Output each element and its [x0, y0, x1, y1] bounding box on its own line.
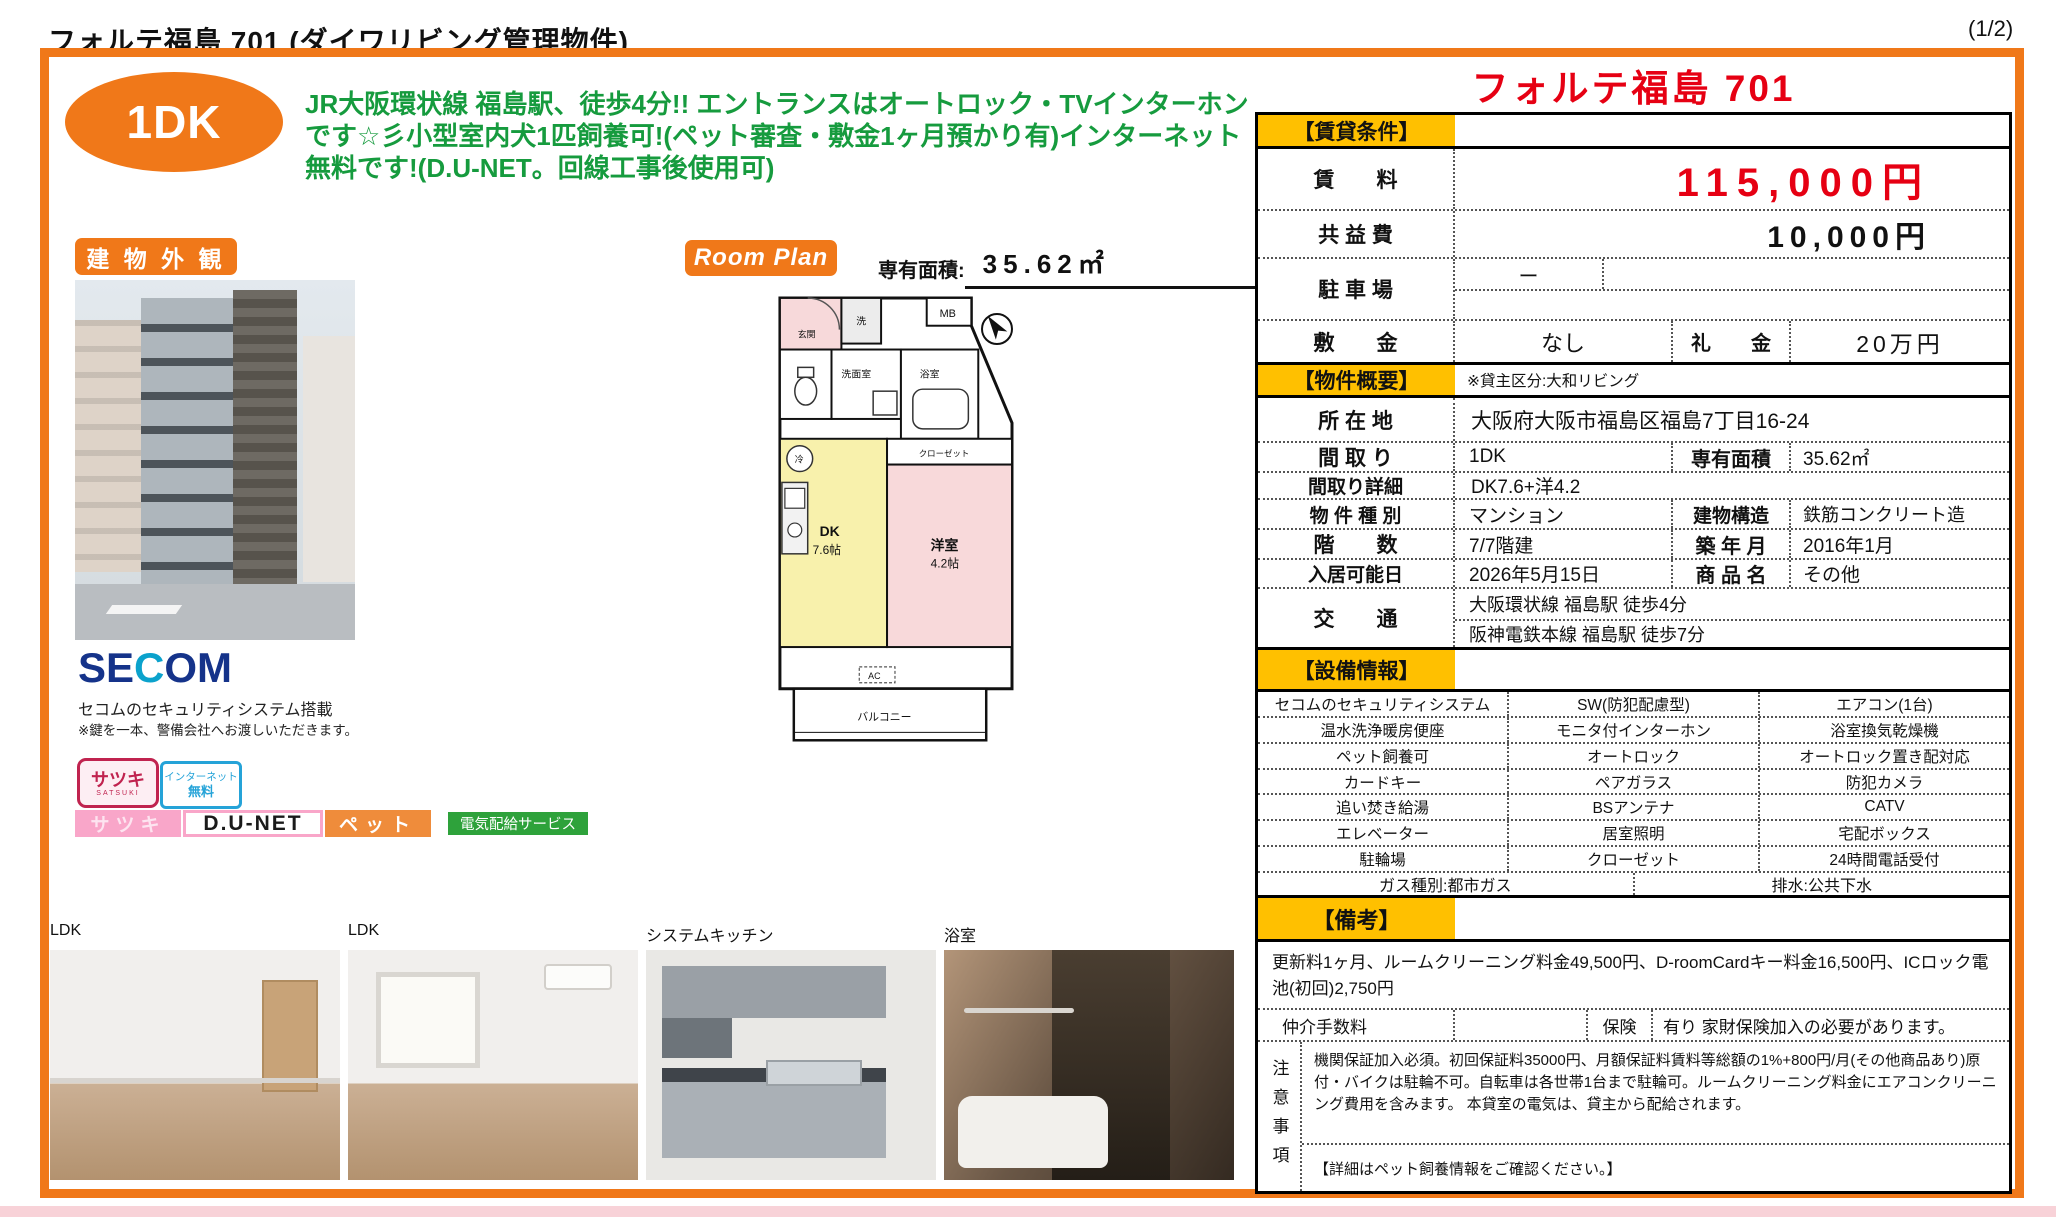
equipment-row: エレベーター 居室照明 宅配ボックス [1258, 821, 2009, 847]
ac-label: AC [868, 671, 881, 681]
photo-ldk-2-window [376, 972, 480, 1068]
equipment-item: BSアンテナ [1509, 795, 1760, 819]
area-value: 35.62㎡ [965, 244, 1283, 289]
equipment-row: 温水洗浄暖房便座 モニタ付インターホン 浴室換気乾燥機 [1258, 718, 2009, 744]
owner-note: ※貸主区分:大和リビング [1455, 365, 2009, 395]
parking-value: ー [1455, 259, 1602, 289]
dk-size-label: 7.6帖 [813, 543, 842, 557]
toilet-tank-icon [798, 367, 814, 377]
equipment-item: セコムのセキュリティシステム [1258, 692, 1509, 716]
section-property-overview: 【物件概要】 ※貸主区分:大和リビング [1258, 365, 2009, 398]
photo-brick-tower [233, 290, 297, 594]
equipment-row: カードキー ペアガラス 防犯カメラ [1258, 770, 2009, 796]
photo-right-building [303, 336, 355, 582]
caution-text-1: 機関保証加入必須。初回保証料35000円、月額保証料賃料等総額の1%+800円/… [1302, 1042, 2009, 1145]
rent-value: 115,000円 [1455, 149, 2009, 209]
equipment-item: 温水洗浄暖房便座 [1258, 718, 1509, 742]
key-money-value: 20万円 [1791, 321, 2009, 362]
photo-kitchen-lower-cabinet [662, 1082, 886, 1158]
property-type-value: マンション [1455, 500, 1671, 528]
washroom-label: 洗面室 [841, 367, 871, 380]
toilet-bowl-icon [795, 377, 817, 405]
equipment-item: 防犯カメラ [1760, 770, 2009, 794]
photo-kitchen-upper-cabinet [662, 966, 886, 1018]
common-fee-value: 10,000円 [1455, 211, 2009, 257]
movein-label: 入居可能日 [1258, 560, 1455, 587]
gas-type: ガス種別:都市ガス [1258, 873, 1635, 895]
caution-row: 注意事項 機関保証加入必須。初回保証料35000円、月額保証料賃料等総額の1%+… [1258, 1042, 2009, 1191]
access-line-1: 大阪環状線 福島駅 徒歩4分 [1455, 589, 2009, 621]
photo-label-2: LDK [348, 922, 379, 940]
equipment-item: 追い焚き給湯 [1258, 795, 1509, 819]
exclusive-area-value: 35.62㎡ [1791, 443, 2009, 471]
dunet-badge: D.U-NET [183, 810, 323, 837]
meter-box-label: MB [940, 308, 956, 320]
satsuki-stamp-sub: SATSUKI [96, 790, 139, 797]
equipment-item: 駐輪場 [1258, 847, 1509, 871]
internet-free-line1: インターネット [164, 771, 238, 784]
secom-note-2: ※鍵を一本、警備会社へお渡しいただきます。 [78, 719, 358, 739]
photo-kitchen-hood [662, 1018, 732, 1058]
entrance-label: 玄関 [798, 329, 816, 340]
remarks-header: 【備考】 [1258, 898, 1455, 939]
equipment-item: カードキー [1258, 770, 1509, 794]
deposit-row: 敷 金 なし 礼 金 20万円 [1258, 321, 2009, 365]
western-label: 洋室 [931, 537, 959, 553]
equipment-spacer [1455, 650, 2009, 689]
parking-divider-h [1455, 289, 2009, 291]
photo-ldk-2-aircon [544, 964, 612, 990]
parking-label: 駐 車 場 [1258, 259, 1455, 319]
satsuki-stamp-badge: サツキ SATSUKI [77, 758, 159, 808]
rent-row: 賃 料 115,000円 [1258, 149, 2009, 211]
photo-kitchen [646, 950, 936, 1180]
photo-bathroom-towel-bar [964, 1008, 1074, 1013]
common-fee-row: 共 益 費 10,000円 [1258, 211, 2009, 259]
structure-label: 建物構造 [1671, 500, 1791, 528]
drain-type: 排水:公共下水 [1635, 873, 2010, 895]
common-fee-label: 共 益 費 [1258, 211, 1455, 257]
entrance-area [780, 298, 841, 350]
closet-label: クローゼット [919, 449, 970, 459]
photo-ldk-1-baseboard [50, 1078, 340, 1083]
secom-logo-om: OM [164, 644, 232, 691]
section-equipment: 【設備情報】 [1258, 650, 2009, 692]
satsuki-bar-badge: サツキ [75, 810, 181, 837]
property-title: フォルテ福島 701 [1255, 58, 2012, 112]
photo-road-marking [106, 605, 182, 614]
secom-logo-se: SE [78, 644, 134, 691]
equipment-header: 【設備情報】 [1258, 650, 1455, 689]
photo-label-1: LDK [50, 922, 81, 940]
structure-value: 鉄筋コンクリート造 [1791, 500, 2009, 528]
balcony-label: バルコニー [857, 711, 911, 723]
bathtub-icon [913, 389, 969, 429]
parking-divider-v [1602, 259, 1604, 289]
floors-row: 階 数 7/7階建 築 年 月 2016年1月 [1258, 530, 2009, 560]
western-size-label: 4.2帖 [931, 557, 960, 571]
secom-logo: SECOM [78, 644, 232, 692]
equipment-item: 24時間電話受付 [1760, 847, 2009, 871]
photo-ldk-1 [50, 950, 340, 1180]
equipment-item: ペット飼養可 [1258, 744, 1509, 768]
secom-note-1: セコムのセキュリティシステム搭載 [78, 696, 333, 720]
area-label: 専有面積: [878, 254, 965, 289]
broker-insurance-row: 仲介手数料 保険 有り 家財保険加入の必要があります。 [1258, 1010, 2009, 1042]
internet-free-line2: 無料 [188, 784, 214, 799]
movein-row: 入居可能日 2026年5月15日 商 品 名 その他 [1258, 560, 2009, 589]
photo-label-3: システムキッチン [646, 922, 774, 946]
equipment-item: 宅配ボックス [1760, 821, 2009, 845]
address-row: 所 在 地 大阪府大阪市福島区福島7丁目16-24 [1258, 398, 2009, 443]
insurance-value: 有り 家財保険加入の必要があります。 [1653, 1010, 2009, 1040]
bathroom-label: 浴室 [920, 367, 940, 380]
photo-balcony-floors [141, 298, 233, 594]
floors-value: 7/7階建 [1455, 530, 1671, 558]
secom-logo-c: C [134, 644, 164, 691]
kitchen-sink-icon [785, 488, 805, 508]
equipment-item: モニタ付インターホン [1509, 718, 1760, 742]
exclusive-area-label: 専有面積 [1671, 443, 1791, 471]
insurance-label: 保険 [1588, 1010, 1653, 1040]
floors-label: 階 数 [1258, 530, 1455, 558]
caution-label: 注意事項 [1258, 1042, 1302, 1191]
access-label: 交 通 [1258, 589, 1455, 647]
layout-label: 間 取 り [1258, 443, 1455, 471]
stove-icon [788, 523, 802, 537]
internet-free-badge: インターネット 無料 [160, 761, 242, 809]
caution-text-2: 【詳細はペット飼養情報をご確認ください。】 [1302, 1145, 2009, 1191]
gas-drain-row: ガス種別:都市ガス 排水:公共下水 [1258, 871, 2009, 898]
electric-service-badge: 電気配給サービス [448, 812, 588, 835]
remarks-spacer [1455, 898, 2009, 939]
equipment-row: セコムのセキュリティシステム SW(防犯配慮型) エアコン(1台) [1258, 692, 2009, 718]
exclusive-area-line: 専有面積: 35.62㎡ [878, 244, 1283, 289]
equipment-item: オートロック置き配対応 [1760, 744, 2009, 768]
caution-body: 機関保証加入必須。初回保証料35000円、月額保証料賃料等総額の1%+800円/… [1302, 1042, 2009, 1191]
equipment-item: CATV [1760, 795, 2009, 819]
building-exterior-photo [75, 280, 355, 640]
sink-icon [873, 391, 897, 415]
layout-row: 間 取 り 1DK 専有面積 35.62㎡ [1258, 443, 2009, 473]
photo-bathroom [944, 950, 1234, 1180]
page-number: (1/2) [1968, 16, 2013, 42]
equipment-row: ペット飼養可 オートロック オートロック置き配対応 [1258, 744, 2009, 770]
parking-row: 駐 車 場 ー [1258, 259, 2009, 321]
layout-detail-label: 間取り詳細 [1258, 473, 1455, 498]
equipment-item: 浴室換気乾燥機 [1760, 718, 2009, 742]
access-row: 交 通 大阪環状線 福島駅 徒歩4分 阪神電鉄本線 福島駅 徒歩7分 [1258, 589, 2009, 650]
fridge-label: 冷 [795, 454, 804, 465]
rent-label: 賃 料 [1258, 149, 1455, 209]
product-value: その他 [1791, 560, 2009, 587]
washer-label: 洗 [856, 316, 866, 328]
equipment-item: オートロック [1509, 744, 1760, 768]
layout-detail-row: 間取り詳細 DK7.6+洋4.2 [1258, 473, 2009, 500]
property-type-label: 物 件 種 別 [1258, 500, 1455, 528]
rental-conditions-spacer [1455, 115, 2009, 146]
room-plan-label: Room Plan [685, 240, 837, 276]
deposit-label: 敷 金 [1258, 321, 1455, 362]
section-remarks: 【備考】 [1258, 898, 2009, 942]
north-arrow-icon [978, 310, 1016, 348]
section-rental-conditions: 【賃貸条件】 [1258, 115, 2009, 149]
built-label: 築 年 月 [1671, 530, 1791, 558]
property-type-row: 物 件 種 別 マンション 建物構造 鉄筋コンクリート造 [1258, 500, 2009, 530]
floor-plan: 玄関 洗 MB 洗面室 浴室 冷 DK 7.6帖 クローゼット 洋室 4.2帖 … [768, 292, 1016, 774]
equipment-item: エレベーター [1258, 821, 1509, 845]
remarks-text: 更新料1ヶ月、ルームクリーニング料金49,500円、D-roomCardキー料金… [1258, 942, 2009, 1010]
layout-value: 1DK [1455, 443, 1671, 471]
photo-kitchen-sink [766, 1060, 862, 1086]
built-value: 2016年1月 [1791, 530, 2009, 558]
pet-badge: ペット [325, 810, 431, 837]
key-money-label: 礼 金 [1671, 321, 1791, 362]
photo-bathroom-tub [958, 1096, 1108, 1168]
photo-ldk-1-door [262, 980, 318, 1092]
property-table: 【賃貸条件】 賃 料 115,000円 共 益 費 10,000円 駐 車 場 … [1255, 112, 2012, 1194]
exterior-label: 建 物 外 観 [75, 238, 237, 275]
rental-conditions-header: 【賃貸条件】 [1258, 115, 1455, 146]
photo-label-4: 浴室 [944, 922, 976, 946]
equipment-item: エアコン(1台) [1760, 692, 2009, 716]
dk-label: DK [820, 523, 840, 539]
address-label: 所 在 地 [1258, 398, 1455, 441]
property-overview-header: 【物件概要】 [1258, 365, 1455, 395]
photo-neighbor-building [75, 320, 143, 572]
access-line-2: 阪神電鉄本線 福島駅 徒歩7分 [1455, 621, 2009, 647]
deposit-value: なし [1455, 321, 1671, 362]
equipment-item: SW(防犯配慮型) [1509, 692, 1760, 716]
equipment-item: 居室照明 [1509, 821, 1760, 845]
access-values: 大阪環状線 福島駅 徒歩4分 阪神電鉄本線 福島駅 徒歩7分 [1455, 589, 2009, 647]
equipment-row: 追い焚き給湯 BSアンテナ CATV [1258, 795, 2009, 821]
movein-value: 2026年5月15日 [1455, 560, 1671, 587]
satsuki-stamp-text: サツキ [91, 770, 145, 790]
address-value: 大阪府大阪市福島区福島7丁目16-24 [1455, 398, 2009, 441]
equipment-item: クローゼット [1509, 847, 1760, 871]
layout-type-badge: 1DK [65, 72, 283, 172]
equipment-row: 駐輪場 クローゼット 24時間電話受付 [1258, 847, 2009, 871]
broker-fee-label: 仲介手数料 [1258, 1010, 1455, 1040]
photo-ldk-2 [348, 950, 638, 1180]
catch-copy: JR大阪環状線 福島駅、徒歩4分!! エントランスはオートロック・TVインターホ… [305, 88, 1250, 184]
layout-detail-value: DK7.6+洋4.2 [1455, 473, 2009, 498]
equipment-grid: セコムのセキュリティシステム SW(防犯配慮型) エアコン(1台) 温水洗浄暖房… [1258, 692, 2009, 871]
product-label: 商 品 名 [1671, 560, 1791, 587]
broker-fee-value [1455, 1010, 1588, 1040]
bottom-strip [0, 1206, 2056, 1217]
parking-value-area: ー [1455, 259, 2009, 319]
equipment-item: ペアガラス [1509, 770, 1760, 794]
